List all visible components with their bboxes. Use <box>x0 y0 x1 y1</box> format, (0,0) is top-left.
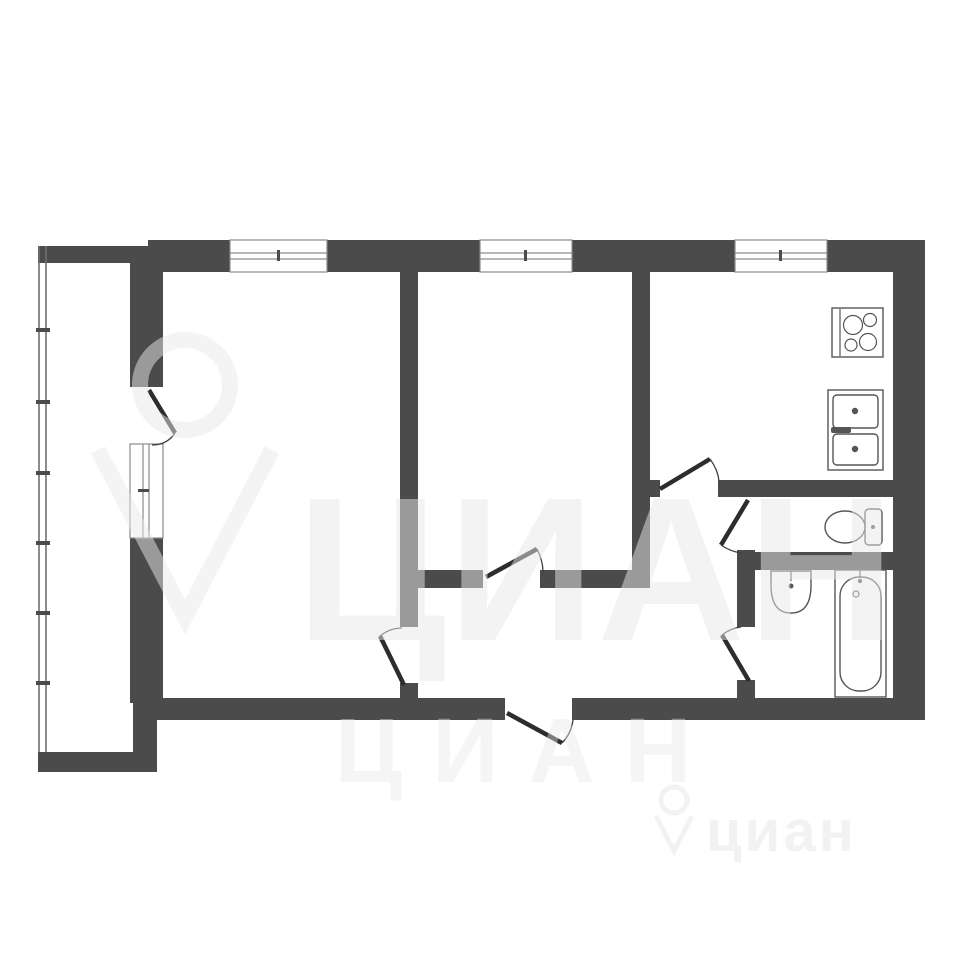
watermark-small-text: циан <box>706 799 857 864</box>
glazing-mullion-3 <box>36 471 50 475</box>
watermark-large-text: ЦИАН <box>296 455 897 684</box>
balcony-bottom-wall <box>38 752 157 772</box>
top-wall-d <box>827 240 925 272</box>
window-3-mullion <box>779 250 782 261</box>
watermark-small-pin-point-icon <box>656 816 692 851</box>
window-1-mullion <box>277 250 280 261</box>
balcony-window-mullion <box>138 489 149 492</box>
kitchen-sink-drain-top <box>852 408 858 414</box>
glazing-mullion-1 <box>36 328 50 332</box>
right-wall <box>893 270 925 720</box>
watermark-large: ЦИАН <box>98 340 897 684</box>
glazing-mullion-5 <box>36 611 50 615</box>
top-wall-b <box>327 240 480 272</box>
balcony-top-wall <box>38 246 148 263</box>
glazing-mullion-2 <box>36 400 50 404</box>
watermark-small: циан <box>656 787 857 864</box>
glazing-mullion-4 <box>36 541 50 545</box>
window-2-mullion <box>524 250 527 261</box>
glazing-mullion-6 <box>36 681 50 685</box>
watermark-medium: ЦИАН <box>335 700 721 802</box>
watermark-pin-point-icon <box>98 450 272 617</box>
top-wall-c <box>572 240 735 272</box>
kitchen-sink-faucet <box>831 427 851 433</box>
kitchen-sink-drain-bottom <box>852 446 858 452</box>
watermark-medium-text: ЦИАН <box>335 700 721 802</box>
floor-plan-canvas: ЦИАН ЦИАН циан <box>0 0 960 960</box>
left-wall-foot <box>133 700 157 755</box>
